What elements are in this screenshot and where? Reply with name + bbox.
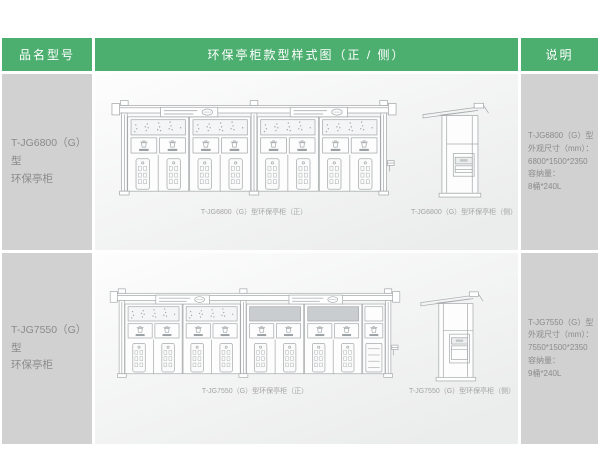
front-view-caption: T-JG6800（G）型环保亭柜（正） (111, 207, 397, 217)
model-type: 环保亭柜 (11, 171, 92, 189)
side-view-drawing-jg7550 (419, 280, 491, 382)
spec-line: 7550*1500*2350 (528, 342, 594, 355)
spec-line: T-JG6800（G）型 (528, 130, 594, 143)
front-view-svg-2 (109, 279, 401, 380)
header-diagram-title: 环保亭柜款型样式图（正 / 侧） (95, 38, 518, 71)
side-view-svg-2 (419, 280, 491, 382)
spec-line: 8桶*240L (528, 181, 594, 194)
front-view-drawing-jg6800 (111, 90, 397, 198)
front-view-caption: T-JG7550（G）型环保亭柜（正） (109, 386, 401, 396)
spec-line: 外观尺寸（mm）： (528, 143, 594, 156)
model-type: 环保亭柜 (11, 357, 92, 375)
spec-table: 品名型号 环保亭柜款型样式图（正 / 侧） 说明 T-JG6800（G）型 环保… (2, 38, 598, 444)
model-name: T-JG6800（G）型 (11, 135, 92, 171)
side-view-svg-1 (421, 91, 497, 198)
side-view-caption: T-JG6800（G）型环保亭柜（侧） (411, 207, 507, 217)
spec-line: 6800*1500*2350 (528, 156, 594, 169)
model-name: T-JG7550（G）型 (11, 322, 92, 358)
header-notes: 说明 (521, 38, 598, 71)
spec-sheet-page: 品名型号 环保亭柜款型样式图（正 / 侧） 说明 T-JG6800（G）型 环保… (0, 0, 600, 460)
specs-cell-jg6800: T-JG6800（G）型 外观尺寸（mm）： 6800*1500*2350 容纳… (521, 74, 598, 250)
spec-line: 容纳量： (528, 355, 594, 368)
specs-cell-jg7550: T-JG7550（G）型 外观尺寸（mm）： 7550*1500*2350 容纳… (521, 253, 598, 444)
spec-line: 外观尺寸（mm）： (528, 329, 594, 342)
side-view-drawing-jg6800 (421, 91, 497, 198)
diagram-cell-jg6800: T-JG6800（G）型环保亭柜（正） T-JG6800（G）型环保亭柜（侧） (95, 74, 518, 250)
diagram-cell-jg7550: T-JG7550（G）型环保亭柜（正） T-JG7550（G）型环保亭柜（侧） (95, 253, 518, 444)
side-view-caption: T-JG7550（G）型环保亭柜（侧） (409, 386, 503, 396)
spec-line: 容纳量： (528, 168, 594, 181)
header-product-model: 品名型号 (2, 38, 92, 71)
model-cell-jg7550: T-JG7550（G）型 环保亭柜 (2, 253, 92, 444)
front-view-svg-1 (111, 90, 397, 198)
spec-line: 9桶*240L (528, 368, 594, 381)
spec-line: T-JG7550（G）型 (528, 317, 594, 330)
front-view-drawing-jg7550 (109, 279, 401, 380)
model-cell-jg6800: T-JG6800（G）型 环保亭柜 (2, 74, 92, 250)
